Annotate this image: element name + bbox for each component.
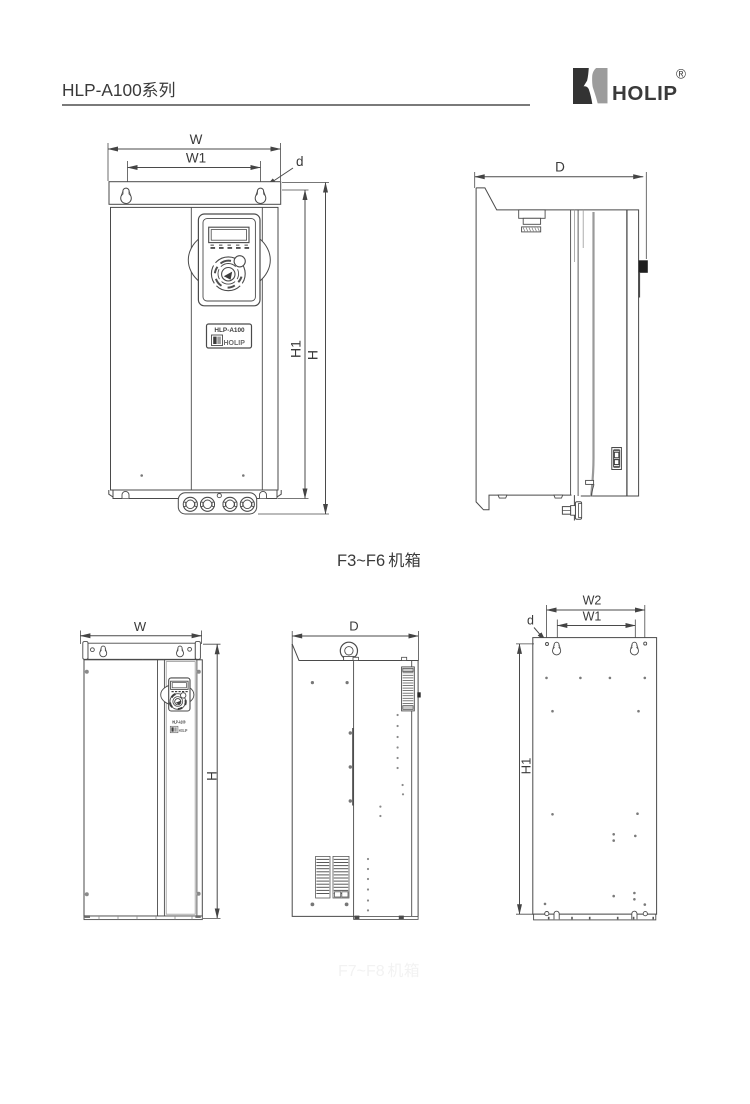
svg-text:W1: W1: [583, 610, 602, 624]
svg-text:HOLIP: HOLIP: [612, 82, 678, 105]
svg-text:d: d: [296, 154, 304, 169]
svg-text:H1: H1: [288, 340, 304, 358]
svg-text:H: H: [204, 771, 219, 781]
svg-text:HLP-A100: HLP-A100: [62, 80, 142, 100]
svg-text:W: W: [190, 132, 203, 147]
svg-text:F7~F8: F7~F8: [338, 963, 385, 980]
svg-text:HOLIP: HOLIP: [179, 728, 188, 734]
svg-text:HOLIP: HOLIP: [224, 340, 246, 347]
svg-text:W2: W2: [583, 594, 602, 608]
svg-text:W: W: [134, 619, 147, 634]
svg-text:D: D: [555, 160, 565, 175]
svg-text:HLP-A100: HLP-A100: [214, 327, 245, 334]
svg-text:d: d: [527, 614, 534, 628]
svg-text:®: ®: [676, 67, 686, 82]
svg-text:W1: W1: [186, 151, 206, 166]
svg-text:H: H: [305, 350, 321, 360]
svg-text:F3~F6: F3~F6: [337, 552, 385, 570]
svg-text:HLP-A100: HLP-A100: [172, 720, 185, 725]
svg-text:H1: H1: [519, 758, 534, 775]
svg-text:D: D: [349, 619, 358, 634]
